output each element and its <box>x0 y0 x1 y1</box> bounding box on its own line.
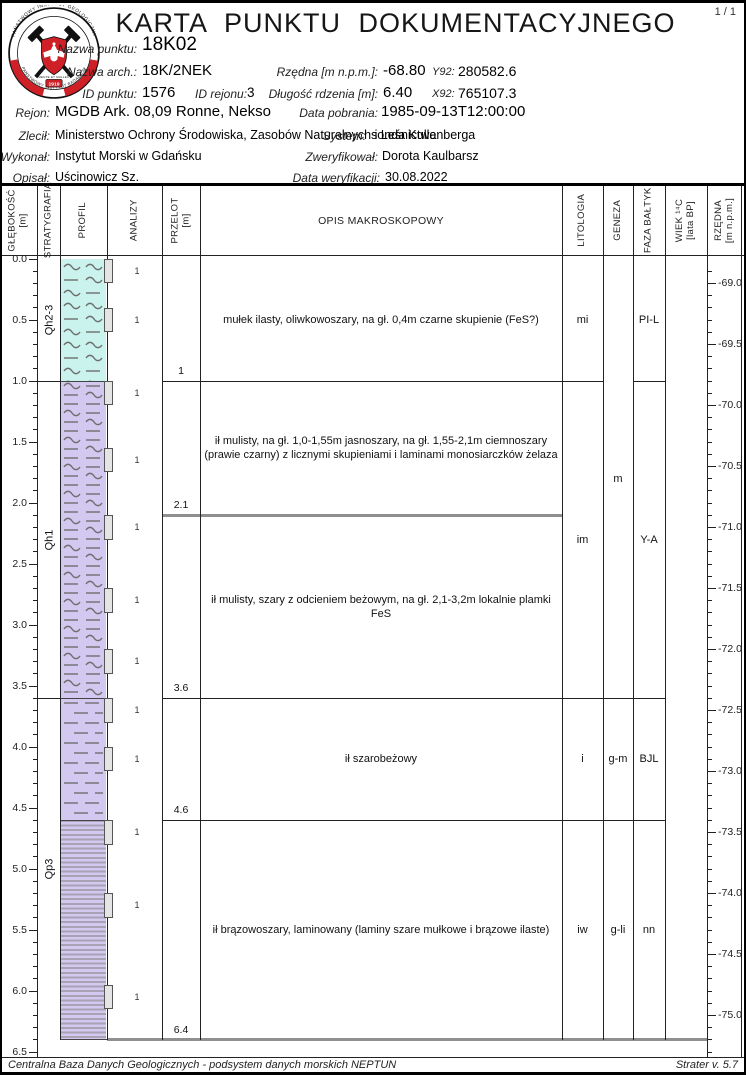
elevation-tick <box>708 820 712 821</box>
elevation-tick <box>708 466 716 467</box>
logo-motto: MENTE ET MALLEO <box>38 75 70 79</box>
field-label-y92: Y92: <box>432 66 455 78</box>
profile-bottom-line <box>60 1039 107 1040</box>
depth-tick <box>33 734 37 735</box>
page-border-top <box>0 0 746 3</box>
elevation-tick <box>708 515 712 516</box>
col-header-text: GENEZA <box>613 200 624 241</box>
depth-tick-label: 3.0 <box>0 619 27 631</box>
faza-baltyk-cell-label: PI-L <box>634 259 664 381</box>
profile-pattern-silt-clay <box>61 381 106 699</box>
depth-tick <box>33 881 37 882</box>
elevation-tick <box>708 673 712 674</box>
depth-tick <box>33 356 37 357</box>
depth-tick <box>29 320 37 321</box>
elevation-tick <box>708 490 712 491</box>
col-header-text: PROFIL <box>78 202 89 238</box>
field-value-id-rejonu: 3 <box>247 85 255 100</box>
przelot-label: 1 <box>162 365 200 379</box>
faza-baltyk-cell-label: BJL <box>634 698 664 820</box>
depth-tick <box>33 307 37 308</box>
depth-tick-label: 1.5 <box>0 436 27 448</box>
elevation-tick <box>708 808 712 809</box>
depth-tick <box>33 368 37 369</box>
elevation-tick <box>708 869 712 870</box>
col-header-text: STRATYGRAFIA <box>43 183 54 259</box>
elevation-tick-label: -72.0 <box>718 643 744 655</box>
elevation-tick <box>708 576 712 577</box>
opis-text-line: ił szarobeżowy <box>345 752 417 766</box>
field-value-system: sonda Kullenberga <box>371 128 475 142</box>
depth-tick <box>33 576 37 577</box>
depth-tick-label: 4.5 <box>0 802 27 814</box>
analizy-count: 1 <box>112 515 162 539</box>
opis-text-line: (prawie czarny) z licznymi skupieniami i… <box>204 448 557 462</box>
elevation-tick <box>708 527 716 528</box>
depth-tick <box>29 686 37 687</box>
elevation-tick <box>708 320 712 321</box>
depth-tick <box>33 466 37 467</box>
col-header-text: FAZA BAŁTYK <box>644 188 655 254</box>
litologia-cell-label: mi <box>563 259 602 381</box>
elevation-tick <box>708 795 712 796</box>
depth-tick <box>33 478 37 479</box>
depth-tick <box>33 771 37 772</box>
col-header-przelot: PRZELOT[m] <box>162 186 200 255</box>
column-border <box>665 186 666 1040</box>
field-label-data-pobrania: Data pobrania: <box>299 106 378 120</box>
depth-tick <box>33 454 37 455</box>
col-header-geneza: GENEZA <box>603 186 633 255</box>
col-header-faza-baltyk: FAZA BAŁTYK <box>633 186 665 255</box>
przelot-label: 6.4 <box>162 1024 200 1038</box>
col-header-text: ANALIZY <box>129 200 140 242</box>
elevation-tick <box>708 539 712 540</box>
elevation-tick <box>708 844 712 845</box>
geneza-cell-label: m <box>604 259 632 698</box>
depth-tick <box>33 905 37 906</box>
elevation-tick <box>708 454 712 455</box>
depth-tick <box>33 649 37 650</box>
przelot-label: 3.6 <box>162 682 200 696</box>
field-value-rejon: MGDB Ark. 08,09 Ronne, Nekso <box>55 103 271 120</box>
elevation-tick <box>708 978 712 979</box>
faza-baltyk-cell-label: Y-A <box>634 381 664 698</box>
analizy-count: 1 <box>112 308 162 332</box>
elevation-tick-label: -74.0 <box>718 887 744 899</box>
depth-tick-label: 0.0 <box>0 253 27 265</box>
depth-tick <box>33 710 37 711</box>
col-header-text: OPIS MAKROSKOPOWY <box>318 215 444 227</box>
elevation-tick <box>708 954 716 955</box>
elevation-tick <box>708 893 716 894</box>
litologia-cell-label: iw <box>563 820 602 1040</box>
elevation-tick <box>708 417 712 418</box>
analizy-count: 1 <box>112 588 162 612</box>
field-label-system: System: <box>323 129 366 143</box>
depth-tick <box>33 832 37 833</box>
elevation-tick <box>708 283 716 284</box>
elevation-tick <box>708 307 712 308</box>
elevation-tick-label: -75.0 <box>718 1009 744 1021</box>
opis-text: ił szarobeżowy <box>202 698 560 820</box>
elevation-tick <box>708 271 712 272</box>
depth-tick <box>33 722 37 723</box>
strat-cell: Qh1 <box>38 381 60 698</box>
analizy-count: 1 <box>112 259 162 283</box>
profile-block-varved-clay <box>61 820 106 1040</box>
depth-tick <box>29 259 37 260</box>
elevation-tick <box>708 661 712 662</box>
col-header-unit: [m] <box>181 213 192 227</box>
depth-tick <box>33 1003 37 1004</box>
elevation-tick-label: -73.0 <box>718 765 744 777</box>
col-header-text: LITOLOGIA <box>577 194 588 247</box>
depth-tick <box>29 564 37 565</box>
field-value-id-punktu: 1576 <box>142 84 175 101</box>
geneza-cell-label: g-li <box>604 820 632 1040</box>
depth-tick <box>33 527 37 528</box>
opis-text-line: ił brązowoszary, laminowany (laminy szar… <box>213 923 550 937</box>
depth-tick <box>33 283 37 284</box>
elevation-tick <box>708 917 712 918</box>
field-value-wykonal: Instytut Morski w Gdańsku <box>55 149 202 163</box>
col-header-profil: PROFIL <box>60 186 107 255</box>
elevation-tick <box>708 1027 712 1028</box>
elevation-tick <box>708 686 712 687</box>
depth-tick <box>33 332 37 333</box>
elevation-tick <box>708 783 712 784</box>
depth-tick <box>33 637 37 638</box>
field-value-data-weryfikacji: 30.08.2022 <box>385 170 448 184</box>
column-border <box>707 186 708 1057</box>
elevation-tick <box>708 503 712 504</box>
depth-tick <box>33 673 37 674</box>
depth-tick <box>33 515 37 516</box>
elevation-tick <box>708 1039 712 1040</box>
elevation-tick <box>708 649 716 650</box>
logo-year: 1919 <box>48 81 59 87</box>
elevation-tick <box>708 600 712 601</box>
depth-tick <box>29 503 37 504</box>
table-header-bottom-line <box>0 255 746 256</box>
col-header-unit: [m n.p.m.] <box>725 198 736 243</box>
litologia-cell-label: i <box>563 698 602 820</box>
elevation-tick <box>708 905 712 906</box>
depth-tick <box>33 271 37 272</box>
depth-tick <box>33 1015 37 1016</box>
elevation-tick <box>708 832 716 833</box>
depth-tick <box>29 625 37 626</box>
depth-tick <box>33 661 37 662</box>
analizy-count: 1 <box>112 448 162 472</box>
elevation-tick <box>708 356 712 357</box>
depth-tick <box>33 942 37 943</box>
elevation-tick-label: -71.5 <box>718 582 744 594</box>
analizy-count: 1 <box>112 820 162 844</box>
depth-tick-label: 5.5 <box>0 924 27 936</box>
depth-tick <box>33 344 37 345</box>
profile-pattern-mud-silt <box>61 259 106 381</box>
depth-tick <box>33 783 37 784</box>
profile-block-mud-silt <box>61 259 106 381</box>
profile-block-silt-clay <box>61 381 106 698</box>
elevation-tick-label: -69.5 <box>718 338 744 350</box>
elevation-tick <box>708 625 712 626</box>
col-header-unit: [m] <box>19 213 30 227</box>
column-border <box>741 186 742 1057</box>
elevation-tick-label: -69.0 <box>718 277 744 289</box>
field-label-nazwa-arch: Nazwa arch.: <box>67 65 137 79</box>
depth-tick <box>33 978 37 979</box>
depth-tick <box>33 856 37 857</box>
footer-software-version: Strater v. 5.7 <box>676 1059 738 1071</box>
opis-text-line: ił mulisty, szary z odcieniem beżowym, n… <box>211 593 551 607</box>
strat-cell: Qp3 <box>38 698 60 1040</box>
elevation-tick-label: -71.0 <box>718 521 744 533</box>
col-header-analizy: ANALIZY <box>107 186 162 255</box>
depth-tick <box>29 930 37 931</box>
faza-baltyk-cell-label: nn <box>634 820 664 1040</box>
field-label-rzedna: Rzędna [m n.p.m.]: <box>277 65 378 79</box>
elevation-tick <box>708 588 716 589</box>
elevation-tick <box>708 881 712 882</box>
depth-tick <box>29 808 37 809</box>
field-label-x92: X92: <box>432 88 455 100</box>
elevation-tick <box>708 393 712 394</box>
analizy-count: 1 <box>112 381 162 405</box>
field-label-nazwa-punktu: Nazwa punktu: <box>58 42 137 56</box>
profile-pattern-clay <box>61 698 106 820</box>
field-value-nazwa-punktu: 18K02 <box>142 34 197 56</box>
opis-text-line: FeS <box>371 607 391 621</box>
elevation-tick <box>708 966 712 967</box>
field-label-zlecil: Zlecił: <box>19 129 50 143</box>
opis-text-line: mułek ilasty, oliwkowoszary, na gł. 0,4m… <box>223 313 539 327</box>
elevation-tick <box>708 442 712 443</box>
col-header-litologia: LITOLOGIA <box>562 186 603 255</box>
depth-tick <box>33 551 37 552</box>
field-label-rejon: Rejon: <box>15 106 50 120</box>
page-number: 1 / 1 <box>715 6 736 18</box>
field-label-id-rejonu: ID rejonu: <box>195 87 247 101</box>
elevation-tick <box>708 759 712 760</box>
elevation-tick <box>708 1052 712 1053</box>
depth-tick <box>29 991 37 992</box>
profile-boundary-line <box>60 698 107 699</box>
depth-tick-label: 6.5 <box>0 1046 27 1058</box>
depth-tick <box>29 869 37 870</box>
col-header-text: RZĘDNA <box>714 200 725 241</box>
col-header-stratygrafia: STRATYGRAFIA <box>37 186 60 255</box>
elevation-tick <box>708 991 712 992</box>
field-value-y92: 280582.6 <box>458 63 516 79</box>
elevation-tick <box>708 612 712 613</box>
depth-tick <box>33 490 37 491</box>
depth-tick-label: 0.5 <box>0 314 27 326</box>
strat-label: Qp3 <box>43 859 55 880</box>
depth-tick <box>33 1027 37 1028</box>
table-bottom-line <box>0 1057 746 1058</box>
column-border <box>60 186 61 1040</box>
opis-text: ił brązowoszary, laminowany (laminy szar… <box>202 820 560 1040</box>
opis-text: ił mulisty, na gł. 1,0-1,55m jasnoszary,… <box>202 381 560 515</box>
field-value-zweryfikowal: Dorota Kaulbarsz <box>382 149 479 163</box>
depth-tick <box>33 295 37 296</box>
depth-tick <box>29 381 37 382</box>
elevation-tick <box>708 405 716 406</box>
depth-tick <box>33 795 37 796</box>
document-page: PAŃSTWOWY INSTYTUT GEOLOGICZNY PAŃSTWOWY… <box>0 0 746 1075</box>
strat-cell: Qh2-3 <box>38 259 60 381</box>
depth-tick-label: 3.5 <box>0 680 27 692</box>
elevation-tick <box>708 478 712 479</box>
analizy-count: 1 <box>112 747 162 771</box>
field-label-id-punktu: ID punktu: <box>82 87 137 101</box>
depth-tick <box>29 747 37 748</box>
col-header-rzedna: RZĘDNA[m n.p.m.] <box>707 186 742 255</box>
depth-tick <box>33 759 37 760</box>
depth-tick <box>33 393 37 394</box>
depth-tick <box>33 844 37 845</box>
geneza-cell-label: g-m <box>604 698 632 820</box>
field-label-wykonal: Wykonał: <box>1 150 50 164</box>
elevation-tick <box>708 1003 712 1004</box>
depth-tick <box>33 893 37 894</box>
analizy-count: 1 <box>112 985 162 1009</box>
field-label-zweryfikowal: Zweryfikował: <box>305 150 378 164</box>
field-value-opisal: Uścinowicz Sz. <box>55 170 139 184</box>
elevation-tick <box>708 942 712 943</box>
header-separator <box>0 183 746 186</box>
col-header-unit: [lata BP] <box>686 201 697 240</box>
field-value-x92: 765107.3 <box>458 85 516 101</box>
elevation-tick-label: -74.5 <box>718 948 744 960</box>
column-border <box>162 186 163 1040</box>
analizy-count: 1 <box>112 893 162 917</box>
depth-tick <box>29 442 37 443</box>
elevation-tick <box>708 551 712 552</box>
depth-tick-label: 1.0 <box>0 375 27 387</box>
elevation-tick <box>708 368 712 369</box>
column-border <box>200 186 201 1040</box>
depth-tick <box>33 820 37 821</box>
elevation-tick <box>708 381 712 382</box>
page-border-left <box>0 0 2 1075</box>
profile-boundary-line <box>60 820 107 821</box>
depth-tick <box>33 954 37 955</box>
depth-tick <box>33 1039 37 1040</box>
depth-tick-label: 2.0 <box>0 497 27 509</box>
profile-boundary-line <box>60 381 107 382</box>
elevation-tick <box>708 698 712 699</box>
depth-tick-label: 6.0 <box>0 985 27 997</box>
elevation-tick <box>708 747 712 748</box>
elevation-tick <box>708 637 712 638</box>
elevation-tick <box>708 710 716 711</box>
elevation-tick <box>708 295 712 296</box>
depth-tick <box>33 917 37 918</box>
depth-tick <box>33 612 37 613</box>
strat-label: Qh1 <box>43 529 55 550</box>
footer-database-note: Centralna Baza Danych Geologicznych - po… <box>8 1059 396 1071</box>
field-value-rzedna: -68.80 <box>383 62 426 79</box>
elevation-tick <box>708 930 712 931</box>
analizy-count: 1 <box>112 698 162 722</box>
elevation-tick <box>708 722 712 723</box>
depth-tick-label: 2.5 <box>0 558 27 570</box>
profile-block-clay <box>61 698 106 820</box>
elevation-tick <box>708 564 712 565</box>
elevation-tick-label: -72.5 <box>718 704 744 716</box>
elevation-tick-label: -70.5 <box>718 460 744 472</box>
strat-label: Qh2-3 <box>43 305 55 336</box>
depth-tick-label: 5.0 <box>0 863 27 875</box>
col-header-wiek-14c: WIEK ¹⁴C[lata BP] <box>665 186 707 255</box>
elevation-tick-label: -73.5 <box>718 826 744 838</box>
field-value-dlugosc-rdzenia: 6.40 <box>383 84 412 101</box>
elevation-tick <box>708 856 712 857</box>
field-value-data-pobrania: 1985-09-13T12:00:00 <box>381 103 525 120</box>
elevation-tick <box>708 771 716 772</box>
col-header-text: PRZELOT <box>171 198 182 244</box>
elevation-tick-label: -70.0 <box>718 399 744 411</box>
elevation-tick <box>708 734 712 735</box>
col-header-glebokosc: GŁĘBOKOŚĆ[m] <box>0 186 37 255</box>
analizy-count: 1 <box>112 649 162 673</box>
elevation-tick <box>708 1015 716 1016</box>
elevation-tick <box>708 332 712 333</box>
col-header-opis: OPIS MAKROSKOPOWY <box>200 186 562 255</box>
depth-tick-label: 4.0 <box>0 741 27 753</box>
depth-tick <box>33 429 37 430</box>
opis-text: ił mulisty, szary z odcieniem beżowym, n… <box>202 515 560 698</box>
depth-tick <box>33 588 37 589</box>
depth-tick <box>33 417 37 418</box>
field-value-nazwa-arch: 18K/2NEK <box>142 62 212 79</box>
litologia-cell-label: im <box>563 381 602 698</box>
elevation-tick <box>708 344 716 345</box>
depth-tick <box>29 1052 37 1053</box>
depth-tick <box>33 539 37 540</box>
opis-text-line: ił mulisty, na gł. 1,0-1,55m jasnoszary,… <box>215 434 547 448</box>
depth-tick <box>33 966 37 967</box>
depth-tick <box>33 600 37 601</box>
depth-tick <box>33 405 37 406</box>
opis-text: mułek ilasty, oliwkowoszary, na gł. 0,4m… <box>202 259 560 381</box>
elevation-tick <box>708 429 712 430</box>
przelot-label: 2.1 <box>162 499 200 513</box>
field-label-dlugosc-rdzenia: Długość rdzenia [m]: <box>269 87 378 101</box>
przelot-label: 4.6 <box>162 804 200 818</box>
